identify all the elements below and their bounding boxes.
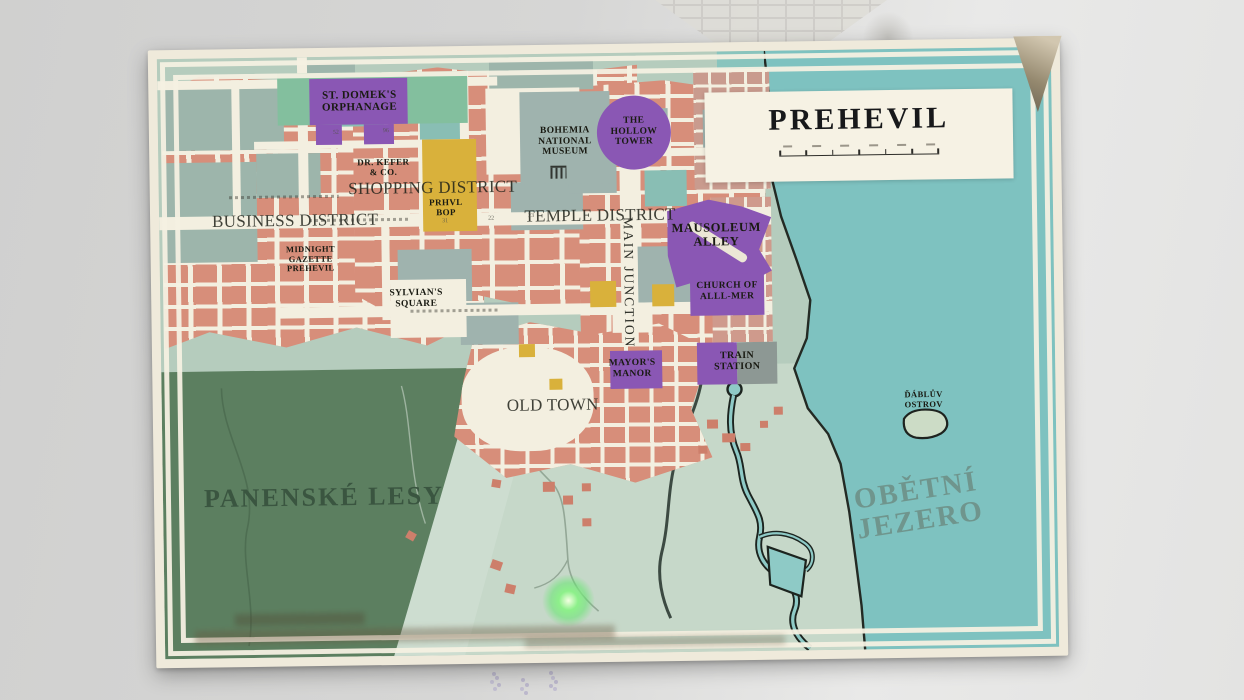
- label-church-alllmer: CHURCH OF ALLL-MER: [696, 280, 758, 302]
- scale-line: [779, 147, 939, 156]
- park-patch: [256, 153, 321, 198]
- label-mayors-manor: MAYOR'S MANOR: [609, 358, 656, 380]
- label-island: ĎÁBLŮV OSTROV: [904, 390, 943, 410]
- museum-icon: [550, 166, 566, 179]
- label-dr-kefer: DR. KEFER & CO.: [357, 157, 409, 178]
- yellow-block: [652, 284, 674, 306]
- label-prhvl-bop: PRHVL BOP: [429, 197, 463, 218]
- street-number: 52: [333, 130, 339, 136]
- wisteria-decoration: [521, 678, 525, 682]
- island-shape: [904, 409, 948, 438]
- label-mausoleum-alley: MAUSOLEUM ALLEY: [671, 220, 761, 249]
- scale-bar: [779, 143, 939, 156]
- label-train-station: TRAIN STATION: [714, 350, 761, 373]
- label-museum: BOHEMIA NATIONAL MUSEUM: [538, 125, 592, 158]
- label-temple-district: TEMPLE DISTRICT: [524, 205, 676, 226]
- map-title-box: PREHEVIL: [704, 88, 1013, 182]
- orphanage-annex: [364, 124, 394, 144]
- yellow-block: [549, 379, 562, 390]
- street-number: 22: [488, 216, 494, 222]
- street-number: 31: [442, 218, 448, 224]
- yellow-block: [519, 344, 535, 357]
- label-midnight-gazette: MIDNIGHT GAZETTE PREHEVIL: [286, 245, 335, 274]
- label-hollow-tower: THE HOLLOW TOWER: [610, 115, 657, 148]
- label-sylvians-square: SYLVIAN'S SQUARE: [389, 288, 443, 310]
- map-title: PREHEVIL: [768, 101, 949, 138]
- page-background: ST. DOMEK'S ORPHANAGE BOHEMIA NATIONAL M…: [0, 0, 1244, 700]
- label-shopping-district: SHOPPING DISTRICT: [348, 177, 517, 198]
- wisteria-decoration: [549, 671, 553, 675]
- label-orphanage: ST. DOMEK'S ORPHANAGE: [322, 89, 397, 115]
- label-old-town: OLD TOWN: [507, 395, 599, 415]
- teal-block: [644, 170, 686, 207]
- street-number: 96: [383, 128, 389, 134]
- label-main-junction: MAIN JUNCTION: [621, 217, 638, 349]
- park-patch: [489, 59, 593, 90]
- wisteria-decoration: [492, 672, 496, 676]
- map-canvas: ST. DOMEK'S ORPHANAGE BOHEMIA NATIONAL M…: [157, 47, 1059, 659]
- yellow-block: [590, 281, 616, 307]
- street-number: 23: [528, 213, 534, 219]
- label-forest: PANENSKÉ LESY: [204, 481, 444, 513]
- map-sheet: ST. DOMEK'S ORPHANAGE BOHEMIA NATIONAL M…: [148, 38, 1069, 669]
